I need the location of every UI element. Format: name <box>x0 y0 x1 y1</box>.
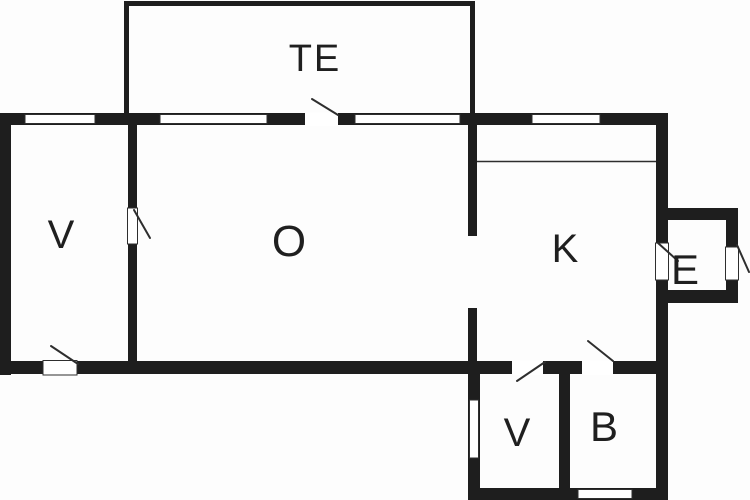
window-v-top <box>25 115 95 124</box>
window-b-bottom <box>578 490 632 499</box>
room-label-o: O <box>272 217 306 266</box>
wall-main-right <box>656 113 668 500</box>
door-gaps-group <box>43 113 739 376</box>
wall-v-b-divider <box>559 361 570 492</box>
room-label-v-small: V <box>504 411 531 455</box>
wall-terrace-top <box>124 1 475 6</box>
door-gap-e-exterior <box>726 247 739 280</box>
room-label-terrace: TE <box>289 38 342 80</box>
room-label-v-left: V <box>48 213 75 257</box>
window-k-top <box>532 115 600 124</box>
room-label-b: B <box>590 403 618 450</box>
wall-terrace-left <box>124 1 129 115</box>
wall-v-o-divider <box>128 125 137 365</box>
door-swings-group <box>51 99 749 381</box>
wall-terrace-right <box>470 1 475 115</box>
wall-e-top <box>656 208 738 220</box>
door-swing-b <box>588 341 613 361</box>
wall-o-k-lower <box>468 308 477 365</box>
window-o-top-west <box>160 115 267 124</box>
windows-group <box>25 115 632 499</box>
door-gap-v-exterior <box>43 361 77 376</box>
room-label-e: E <box>671 246 699 293</box>
door-gap-k-e <box>656 243 669 280</box>
door-gap-b <box>582 361 613 376</box>
wall-o-k-upper <box>468 125 477 236</box>
room-label-k: K <box>552 227 579 271</box>
wall-main-left <box>0 113 11 375</box>
window-o-top-east <box>355 115 460 124</box>
walls-group <box>0 1 738 500</box>
door-gap-terrace <box>305 113 338 127</box>
room-labels-group: TE V O K E V B <box>48 38 699 455</box>
floorplan-svg: TE V O K E V B <box>0 0 750 500</box>
floorplan-canvas: TE V O K E V B <box>0 0 750 500</box>
window-extension-left <box>470 400 479 458</box>
